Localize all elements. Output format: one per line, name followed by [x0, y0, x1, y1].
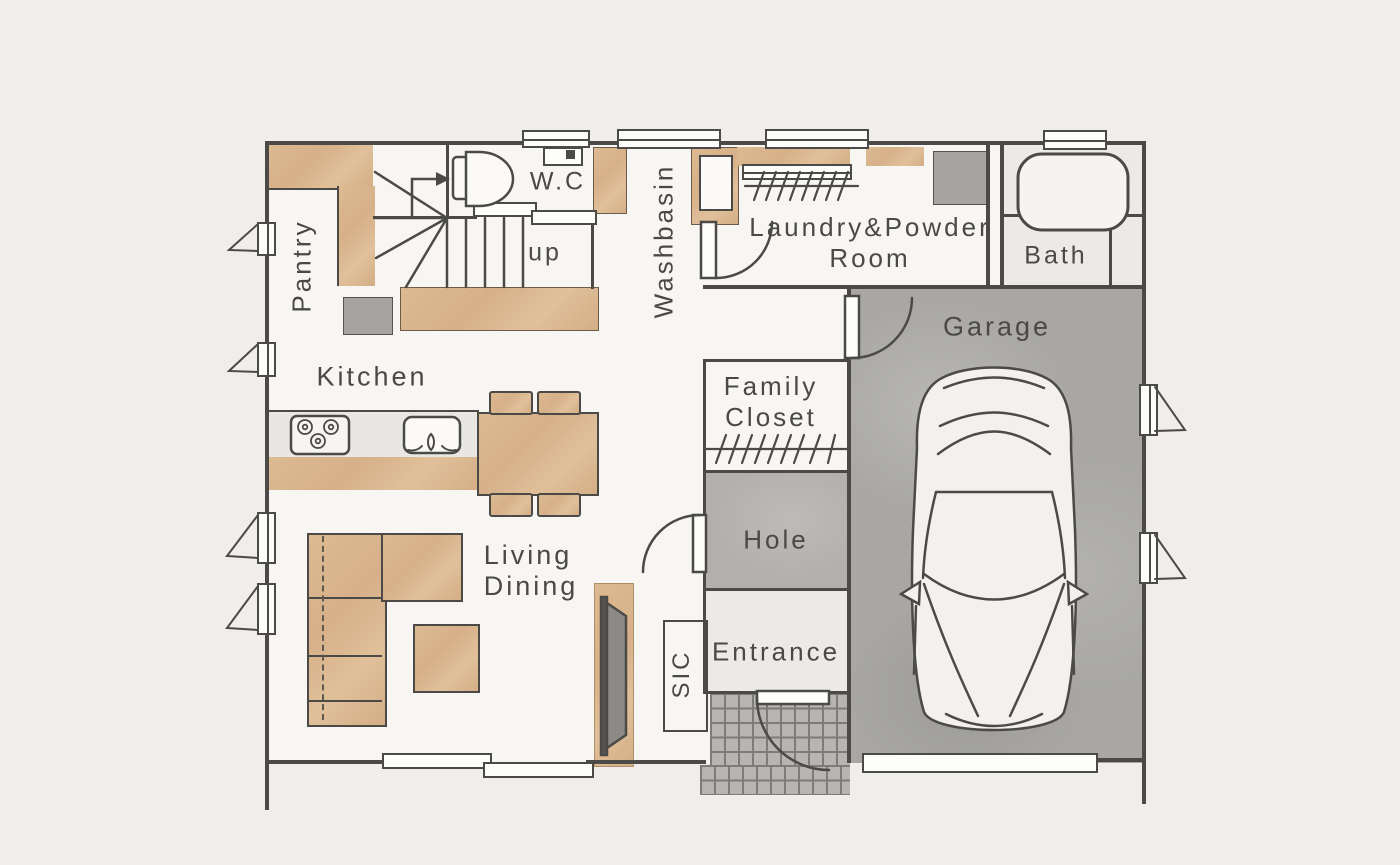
wc-hand-washer — [543, 147, 583, 166]
pantry-shelf-side — [337, 186, 375, 286]
laundry-shelf-right — [866, 147, 924, 166]
pantry-shelf-top — [267, 143, 373, 190]
window-pantry — [257, 222, 276, 256]
entrance-tile-floor — [710, 693, 850, 765]
sofa-backrest-line — [322, 536, 324, 720]
sofa-seat — [381, 533, 463, 602]
laundry-counter — [742, 164, 852, 180]
wall-right — [1142, 141, 1146, 804]
washing-machine — [933, 151, 987, 205]
label-bath: Bath — [1024, 242, 1087, 271]
label-living-dining: Living Dining — [484, 540, 579, 602]
label-pantry: Pantry — [287, 219, 318, 312]
wall-garage-left — [847, 285, 851, 298]
wall-family-closet-top — [703, 359, 850, 362]
sofa-chaise — [307, 533, 387, 727]
label-family-line1: Family — [724, 371, 819, 402]
kitchen-cabinet — [267, 457, 477, 490]
label-living-line2: Dining — [484, 571, 579, 602]
window-wc — [522, 130, 590, 148]
wall-closet-hole-divider — [703, 470, 850, 473]
label-hole: Hole — [743, 525, 808, 556]
garage-floor — [850, 287, 1144, 763]
window-washbasin — [617, 129, 721, 149]
wall-hole-entrance-divider — [703, 588, 850, 591]
wall-stair-right — [591, 216, 594, 289]
label-sic: SIC — [668, 649, 696, 698]
living-sliding-window — [382, 753, 492, 769]
dining-chair — [537, 391, 581, 415]
label-living-line1: Living — [484, 540, 579, 571]
sofa-seam — [308, 700, 382, 702]
label-kitchen: Kitchen — [316, 362, 427, 393]
label-family-line2: Closet — [724, 402, 819, 433]
sofa-seam — [308, 655, 382, 657]
label-wc: W.C — [530, 168, 586, 197]
kitchen-counter — [267, 410, 479, 460]
garage-shutter-door — [862, 753, 1098, 773]
window-garage — [1139, 532, 1158, 584]
label-up: up — [528, 239, 562, 268]
wall-garage-left — [847, 356, 851, 763]
pantry-appliance — [343, 297, 393, 335]
wall-bottom — [265, 760, 387, 764]
label-garage: Garage — [943, 312, 1051, 343]
wall-hole-left — [703, 473, 706, 518]
window-bath — [1043, 130, 1107, 150]
window-living — [257, 583, 276, 635]
ottoman-table — [413, 624, 480, 693]
label-laundry-line2: Room — [749, 243, 990, 274]
wall-bath-inner — [1004, 214, 1144, 217]
wall-entrance-left — [703, 588, 706, 693]
wall-bath-inner — [1109, 214, 1112, 288]
wall-bottom — [1090, 758, 1146, 762]
label-laundry-line1: Laundry&Powder — [749, 212, 990, 243]
wc-sliding-door — [473, 202, 537, 217]
window-laundry — [765, 129, 869, 149]
wall-entrance-tile-edge — [703, 691, 760, 694]
wall-hole-left — [703, 568, 706, 590]
dining-chair — [537, 493, 581, 517]
sofa-seam — [308, 597, 382, 599]
living-sliding-window — [483, 762, 594, 778]
wall-wc-left — [446, 141, 449, 219]
window-living — [257, 512, 276, 564]
wc-hand-washer-tap — [566, 150, 575, 159]
dining-chair — [489, 391, 533, 415]
washbasin-sink — [699, 155, 733, 211]
corridor-wall-cabinet — [593, 147, 627, 214]
dining-chair — [489, 493, 533, 517]
label-entrance: Entrance — [712, 637, 840, 668]
wall-wc-bottom — [373, 216, 477, 219]
wall-laundry-bottom — [703, 285, 1146, 289]
label-washbasin: Washbasin — [649, 164, 680, 319]
window-kitchen — [257, 342, 276, 377]
label-family-closet: Family Closet — [724, 371, 819, 433]
dining-table — [477, 412, 599, 496]
window-garage — [1139, 384, 1158, 436]
label-laundry: Laundry&Powder Room — [749, 212, 990, 274]
tv-board — [594, 583, 634, 767]
floor-plan: Pantry W.C up Washbasin Laundry&Powder R… — [0, 0, 1400, 865]
wall-bottom — [586, 760, 706, 764]
stair-lower-steps — [400, 287, 599, 331]
wall-family-closet-left — [703, 359, 706, 473]
porch-tile — [700, 765, 850, 795]
wc-sliding-door — [531, 210, 597, 225]
